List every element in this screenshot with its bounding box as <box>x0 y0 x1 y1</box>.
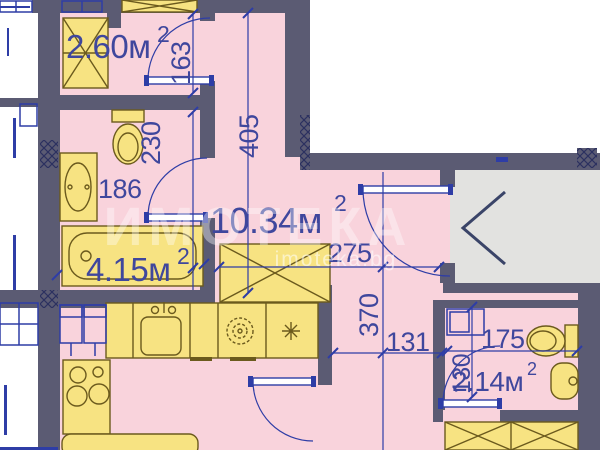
wall-under-outside <box>310 153 600 170</box>
outside-top-right <box>310 0 600 153</box>
shaft-hatch-kitchen <box>40 290 58 308</box>
wall-storage-right-top <box>200 13 215 21</box>
adjacent-wall-fragment <box>0 6 30 8</box>
room-area-label: 2.60м <box>66 28 150 65</box>
adjacent-wall-fragment <box>13 235 16 290</box>
adjacent-wall-fragment <box>13 118 16 158</box>
entry-threshold-mark <box>496 157 508 162</box>
shaft-hatch-left <box>40 140 58 168</box>
toilet-icon <box>527 325 578 357</box>
dimension-label-163: 163 <box>166 41 196 85</box>
floor-plan: 2.60м 2 10.34м 2 4.15м 2 2.14м 2 163 405… <box>0 0 600 450</box>
dimension-label-230: 230 <box>136 121 166 165</box>
counter-tab <box>230 357 256 361</box>
wall-corridor-jamb-bottom <box>440 263 455 283</box>
wardrobe-icon <box>122 0 197 12</box>
pedestal-sink-icon <box>60 153 97 221</box>
wall-wc-right <box>578 293 600 450</box>
adjacent-wall-fragment <box>4 385 7 435</box>
dimension-label-370: 370 <box>354 293 384 337</box>
wall-adjacent-stub <box>0 98 38 107</box>
wall-bath-hall-upper <box>200 110 215 158</box>
wall-wc-bottom-left <box>433 410 443 422</box>
stove-icon <box>63 360 110 434</box>
wall-wc-top <box>433 300 600 308</box>
wall-wc-bottom-right <box>500 410 600 422</box>
wall-corridor-bottom <box>443 283 600 293</box>
wall-left-column <box>38 0 60 450</box>
dimension-label-175: 175 <box>481 324 525 354</box>
dimension-label-405: 405 <box>234 114 264 158</box>
counter-tab <box>190 357 212 361</box>
watermark-site: imoteka.bg <box>275 248 398 271</box>
shaft-hatch-middle <box>300 115 310 170</box>
wall-nib-storage <box>107 13 121 28</box>
kitchen-counter <box>106 302 318 361</box>
dimension-label-131: 131 <box>386 327 430 357</box>
entry-corridor <box>450 170 600 283</box>
floor-plan-canvas: 2.60м 2 10.34м 2 4.15м 2 2.14м 2 163 405… <box>0 0 600 450</box>
shaft-hatch-right <box>577 148 597 168</box>
adjacent-wall-fragment <box>7 28 9 56</box>
wardrobe-icon <box>445 422 578 450</box>
wall-storage-bathroom <box>58 95 215 110</box>
wc-sink-icon <box>551 363 578 399</box>
dimension-label-130: 130 <box>448 354 476 394</box>
kitchen-table <box>62 434 198 450</box>
room-area-sup: 2 <box>527 359 537 379</box>
